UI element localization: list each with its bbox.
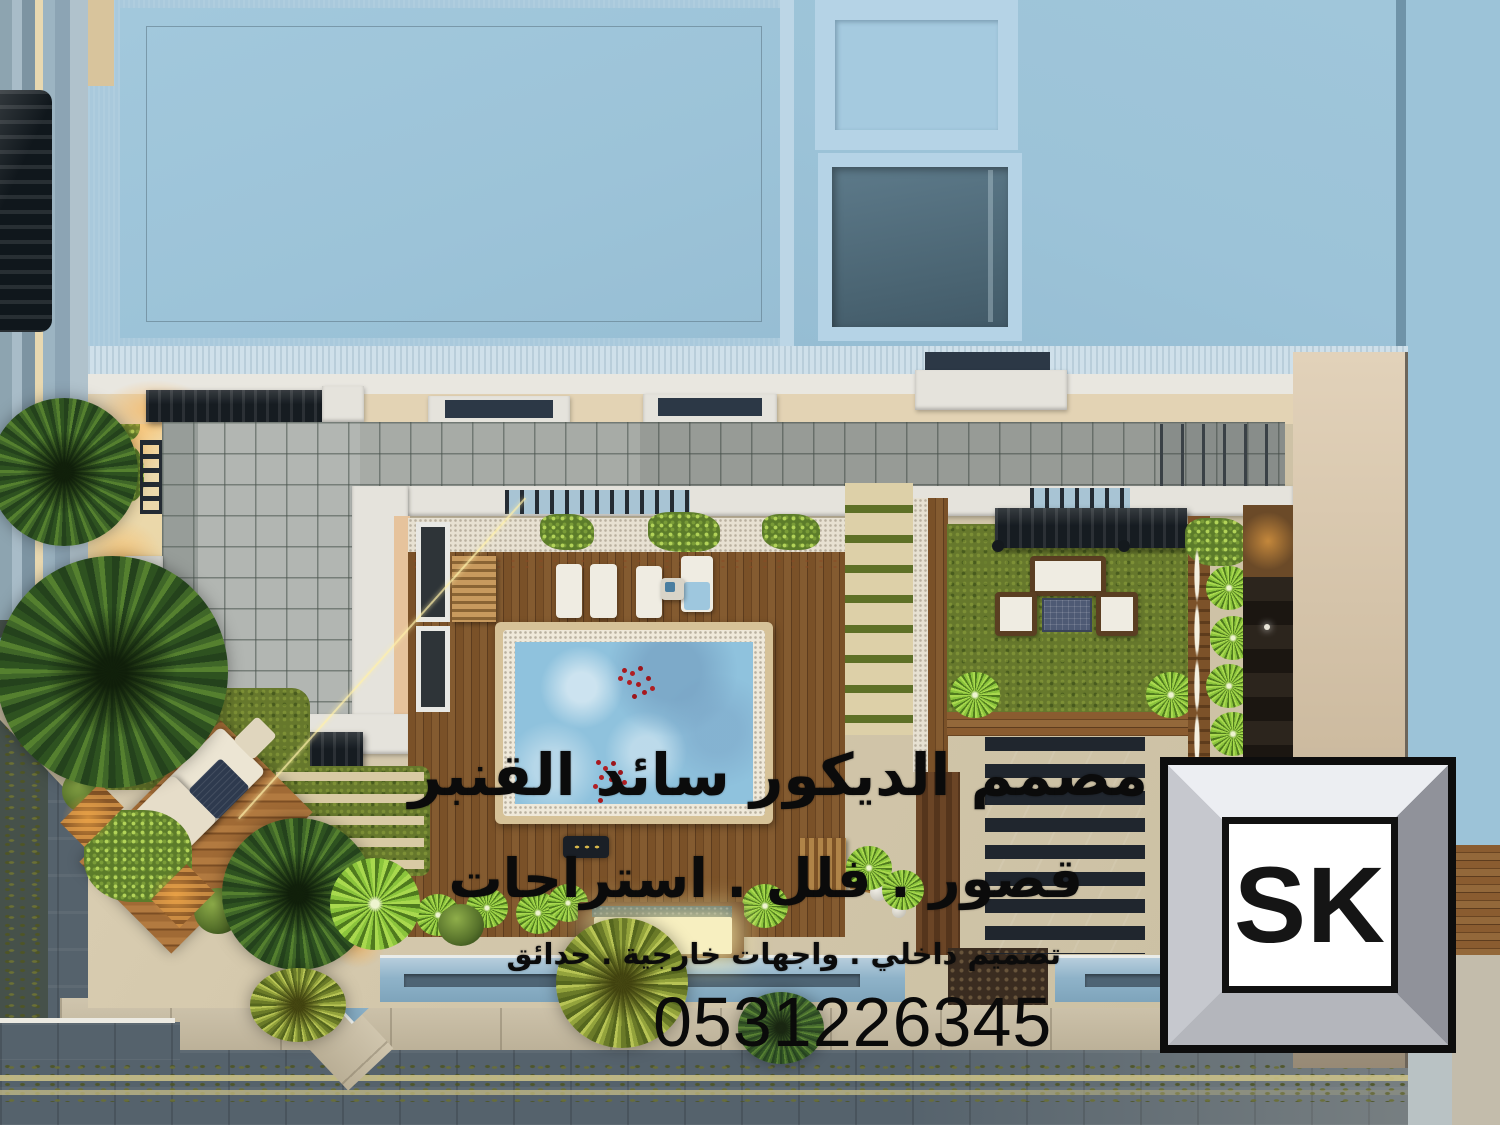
skylight-box-1 — [416, 522, 450, 622]
feature-wall-spot — [1264, 624, 1270, 630]
lounger-towel — [684, 582, 710, 610]
sk-logo-inner-plate: SK — [1222, 817, 1398, 993]
border-plant-2 — [648, 512, 720, 552]
stones-pebble-divider — [913, 498, 928, 772]
stepping-stones — [845, 483, 913, 735]
roof-mid-seam — [780, 0, 794, 348]
sun-lounger-1 — [556, 564, 582, 618]
lawn-yucca-left — [950, 672, 1000, 718]
sun-lounger-2 — [590, 564, 617, 618]
aerial-villa-render: مصمم الديكور سائد القنبر قصور . فلل . اس… — [0, 0, 1500, 1125]
wall-window-b — [658, 398, 762, 416]
street-bottom-left-wedge — [0, 1022, 180, 1060]
wall-window-c — [925, 352, 1050, 372]
canopy-lawn — [995, 508, 1187, 548]
wall-white-box — [322, 386, 364, 422]
sun-lounger-3 — [636, 566, 662, 618]
border-plant-1 — [540, 514, 594, 550]
watermark-line-1: مصمم الديكور سائد القنبر — [409, 742, 1148, 809]
watermark-line-2: قصور . فلل . استراحات — [448, 848, 1083, 910]
curb-line — [0, 1018, 175, 1023]
right-strip-bench — [1452, 845, 1500, 957]
roof-left-seam — [146, 26, 762, 322]
terrace-glass-railing — [1160, 424, 1285, 488]
wall-slab-c — [915, 370, 1067, 410]
wood-bench — [452, 556, 496, 622]
watermark-line-3: تصميم داخلي . واجهات خارجية . حدائق — [507, 938, 1061, 971]
roof-fascia-blue — [88, 346, 1408, 374]
wall-bush-1 — [438, 904, 484, 946]
roof-right-joint — [1396, 0, 1406, 350]
garden-walkway — [928, 498, 948, 772]
corner-uplight-1 — [62, 794, 114, 842]
roof-skylight-frame — [815, 0, 1018, 150]
right-strip-floor-2 — [1452, 955, 1500, 1125]
garden-chair-left — [995, 592, 1037, 636]
roof-corner-sliver — [88, 0, 114, 86]
palm-tree-1 — [0, 556, 228, 788]
parapet-rail-seg-1 — [505, 490, 690, 514]
garden-chair-right — [1096, 592, 1138, 636]
palm-tree-5 — [250, 968, 346, 1042]
roof-recess-reflection — [988, 170, 993, 322]
canopy-top-left — [146, 390, 322, 422]
canopy-finial-right — [1118, 540, 1130, 552]
side-table-tray — [665, 582, 675, 592]
sk-logo-badge: SK — [1160, 757, 1456, 1053]
yucca-large — [330, 858, 420, 950]
lane-line-1 — [0, 1075, 1465, 1081]
border-plant-3 — [762, 514, 820, 550]
lane-line-2 — [0, 1090, 1430, 1095]
pool-petals-1 — [622, 668, 627, 673]
canopy-left-facade — [0, 90, 52, 332]
canopy-finial-left — [992, 540, 1004, 552]
garden-table — [1042, 598, 1092, 632]
street-moss-strip — [0, 1062, 1440, 1102]
skylight-box-2 — [416, 626, 450, 712]
watermark-phone-number: 0531226345 — [653, 982, 1052, 1062]
terrace-railing-1 — [140, 440, 162, 514]
wall-niche — [404, 974, 574, 987]
garden-sofa — [1030, 556, 1106, 596]
feature-wall-uplight-top — [1240, 512, 1296, 570]
sk-logo-text: SK — [1234, 851, 1386, 959]
roof-far-right — [1406, 0, 1500, 352]
corner-uplight-2 — [150, 872, 202, 920]
wall-window-a — [445, 400, 553, 418]
